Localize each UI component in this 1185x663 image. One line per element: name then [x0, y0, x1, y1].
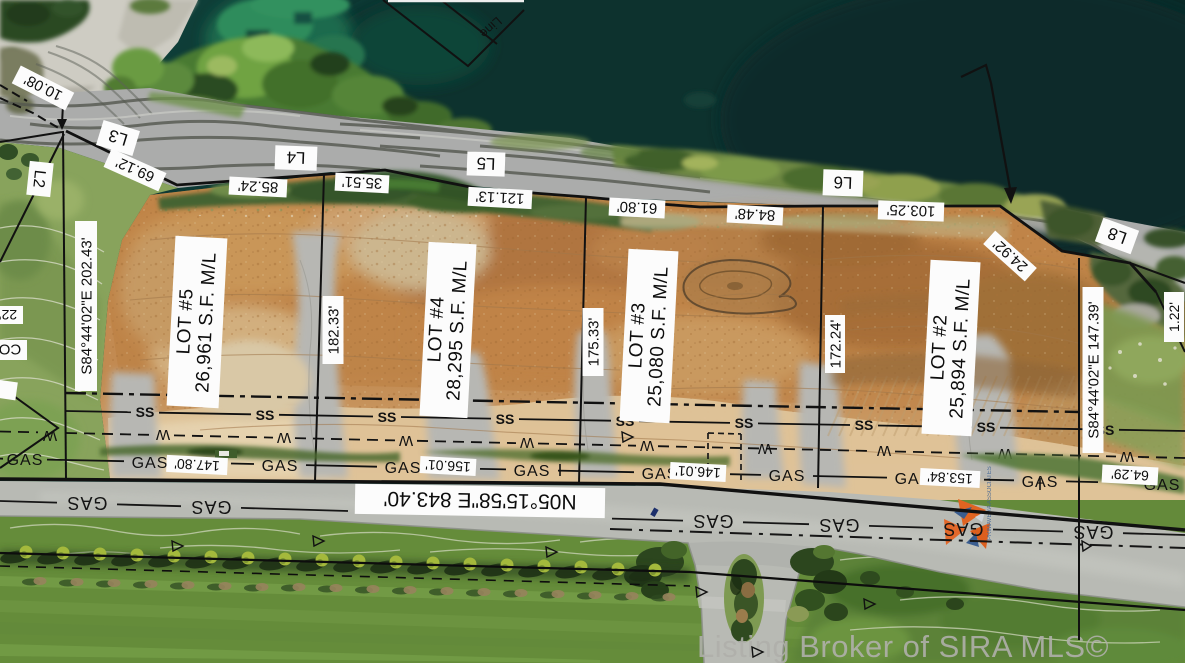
- svg-text:SS: SS: [855, 417, 874, 433]
- svg-text:SS: SS: [735, 415, 754, 431]
- svg-text:Listing Broker of SIRA MLS©: Listing Broker of SIRA MLS©: [697, 629, 1109, 663]
- svg-text:GAS: GAS: [514, 463, 551, 480]
- svg-text:84.48': 84.48': [734, 205, 775, 224]
- svg-text:L5: L5: [476, 154, 496, 174]
- svg-text:SS: SS: [496, 411, 515, 427]
- svg-text:PRIMAVERA ASSOCIATES: PRIMAVERA ASSOCIATES: [987, 466, 993, 540]
- svg-text:W: W: [1119, 448, 1134, 465]
- svg-text:172.24': 172.24': [827, 319, 844, 368]
- svg-text:SS: SS: [977, 419, 996, 435]
- svg-text:L2: L2: [29, 169, 48, 189]
- svg-text:GAS: GAS: [7, 452, 44, 469]
- svg-text:147.80': 147.80': [174, 456, 220, 474]
- svg-text:121.13': 121.13': [475, 187, 525, 207]
- svg-text:GAS: GAS: [66, 493, 107, 513]
- svg-text:W: W: [876, 442, 891, 459]
- svg-text:175.33': 175.33': [585, 317, 602, 366]
- svg-text:W: W: [42, 427, 57, 444]
- svg-text:S84°44'02"E 147.39': S84°44'02"E 147.39': [1085, 301, 1102, 438]
- svg-text:SS: SS: [378, 409, 397, 425]
- svg-text:W: W: [519, 434, 534, 451]
- svg-text:W: W: [398, 432, 413, 449]
- svg-text:W: W: [276, 429, 291, 446]
- svg-text:GAS: GAS: [132, 455, 169, 472]
- svg-text:GAS: GAS: [190, 497, 231, 517]
- svg-text:GAS: GAS: [769, 468, 806, 485]
- svg-text:L4: L4: [286, 148, 306, 168]
- svg-text:W: W: [757, 440, 772, 457]
- svg-text:153.84': 153.84': [927, 469, 973, 487]
- svg-text:61.80': 61.80': [616, 198, 657, 217]
- svg-text:W: W: [155, 426, 170, 443]
- svg-text:L6: L6: [833, 173, 853, 193]
- svg-text:182.33': 182.33': [325, 305, 342, 354]
- svg-text:S84°44'02"E 202.43': S84°44'02"E 202.43': [78, 237, 95, 374]
- svg-text:85.24': 85.24': [237, 177, 278, 196]
- svg-text:22': 22': [0, 307, 17, 323]
- svg-text:64.29': 64.29': [1111, 466, 1150, 484]
- svg-text:SS: SS: [256, 407, 275, 423]
- svg-text:GAS: GAS: [1072, 522, 1113, 542]
- svg-text:GAS: GAS: [818, 515, 859, 535]
- svg-text:CO: CO: [0, 341, 21, 358]
- svg-text:146.01': 146.01': [675, 463, 721, 481]
- svg-text:SS: SS: [136, 404, 155, 420]
- svg-text:GAS: GAS: [692, 511, 733, 531]
- svg-text:156.01': 156.01': [425, 457, 471, 475]
- svg-text:W: W: [639, 437, 654, 454]
- svg-text:103.25': 103.25': [886, 201, 935, 220]
- svg-text:35.51': 35.51': [341, 173, 382, 192]
- svg-text:GAS: GAS: [942, 519, 983, 539]
- svg-text:1.22': 1.22': [1166, 302, 1182, 332]
- svg-text:GAS: GAS: [262, 458, 299, 475]
- svg-text:GAS: GAS: [385, 460, 422, 477]
- svg-text:N05°15'58"E 843.40': N05°15'58"E 843.40': [383, 487, 577, 513]
